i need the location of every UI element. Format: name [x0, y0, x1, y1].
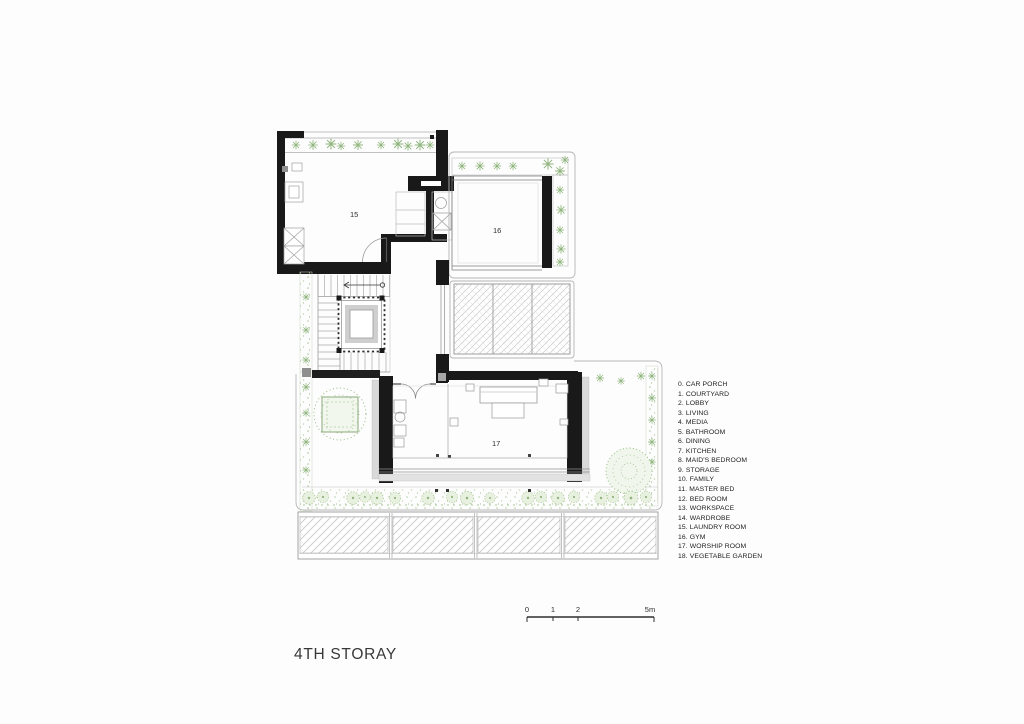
legend-item: 14. WARDROBE [678, 514, 762, 524]
scale-tick-0: 0 [525, 605, 529, 614]
legend: 0. CAR PORCH1. COURTYARD2. LOBBY3. LIVIN… [678, 380, 762, 561]
legend-item: 0. CAR PORCH [678, 380, 762, 390]
legend-item: 6. DINING [678, 437, 762, 447]
tree-icon [606, 448, 652, 494]
wall-stub-upper [436, 260, 449, 285]
room-15-furniture [282, 163, 304, 264]
planter-box-tree [314, 388, 366, 440]
room-16-right-wall [542, 176, 552, 268]
scale-tick-1: 1 [551, 605, 555, 614]
legend-item: 10. FAMILY [678, 475, 762, 485]
garden-top-wall [312, 370, 380, 378]
legend-item: 9. STORAGE [678, 466, 762, 476]
legend-item: 11. MASTER BED [678, 485, 762, 495]
roof-band [298, 512, 658, 559]
scale-tick-2: 2 [576, 605, 580, 614]
stair-direction-arrow [344, 282, 385, 288]
scale-tick-5m: 5m [645, 605, 655, 614]
legend-item: 15. LAUNDRY ROOM [678, 523, 762, 533]
room-16: 16 [436, 152, 575, 285]
plan-title: 4TH STORAY [294, 646, 397, 664]
room-16-label: 16 [493, 226, 501, 235]
pantry-counter [396, 192, 425, 236]
legend-item: 17. WORSHIP ROOM [678, 542, 762, 552]
room-17: 17 [372, 371, 590, 483]
legend-item: 2. LOBBY [678, 399, 762, 409]
room-17-label: 17 [492, 439, 500, 448]
legend-item: 5. BATHROOM [678, 428, 762, 438]
center-hall [390, 274, 449, 382]
legend-item: 16. GYM [678, 533, 762, 543]
planting-bed [302, 488, 658, 510]
room-16-ceiling-line [458, 183, 538, 263]
room-15-planter [284, 132, 436, 153]
room-17-furniture [394, 379, 568, 458]
wall-niche [421, 181, 441, 186]
floor-plan-drawing: 15 [0, 0, 1024, 724]
legend-item: 12. BED ROOM [678, 495, 762, 505]
legend-item: 18. VEGETABLE GARDEN [678, 552, 762, 562]
legend-item: 8. MAID'S BEDROOM [678, 456, 762, 466]
legend-item: 3. LIVING [678, 409, 762, 419]
legend-item: 4. MEDIA [678, 418, 762, 428]
room-15-label: 15 [350, 210, 358, 219]
staircase [318, 274, 390, 372]
legend-item: 7. KITCHEN [678, 447, 762, 457]
legend-item: 13. WORKSPACE [678, 504, 762, 514]
scale-bar: 0 1 2 5m [525, 605, 655, 622]
skylight-hatched-area [450, 281, 574, 358]
room-16-planter-plants [458, 156, 569, 266]
room-16-thin-walls [452, 176, 542, 270]
room-15-planter-plants [292, 139, 434, 151]
room-15: 15 [277, 130, 454, 274]
right-garden [596, 366, 658, 506]
legend-item: 1. COURTYARD [678, 390, 762, 400]
terrace-boundary [296, 361, 662, 510]
legend-list: 0. CAR PORCH1. COURTYARD2. LOBBY3. LIVIN… [678, 380, 762, 561]
room-17-window-wall [379, 458, 590, 481]
stair-void-railing [337, 296, 385, 354]
floor-plan-page: 15 [0, 0, 1024, 724]
